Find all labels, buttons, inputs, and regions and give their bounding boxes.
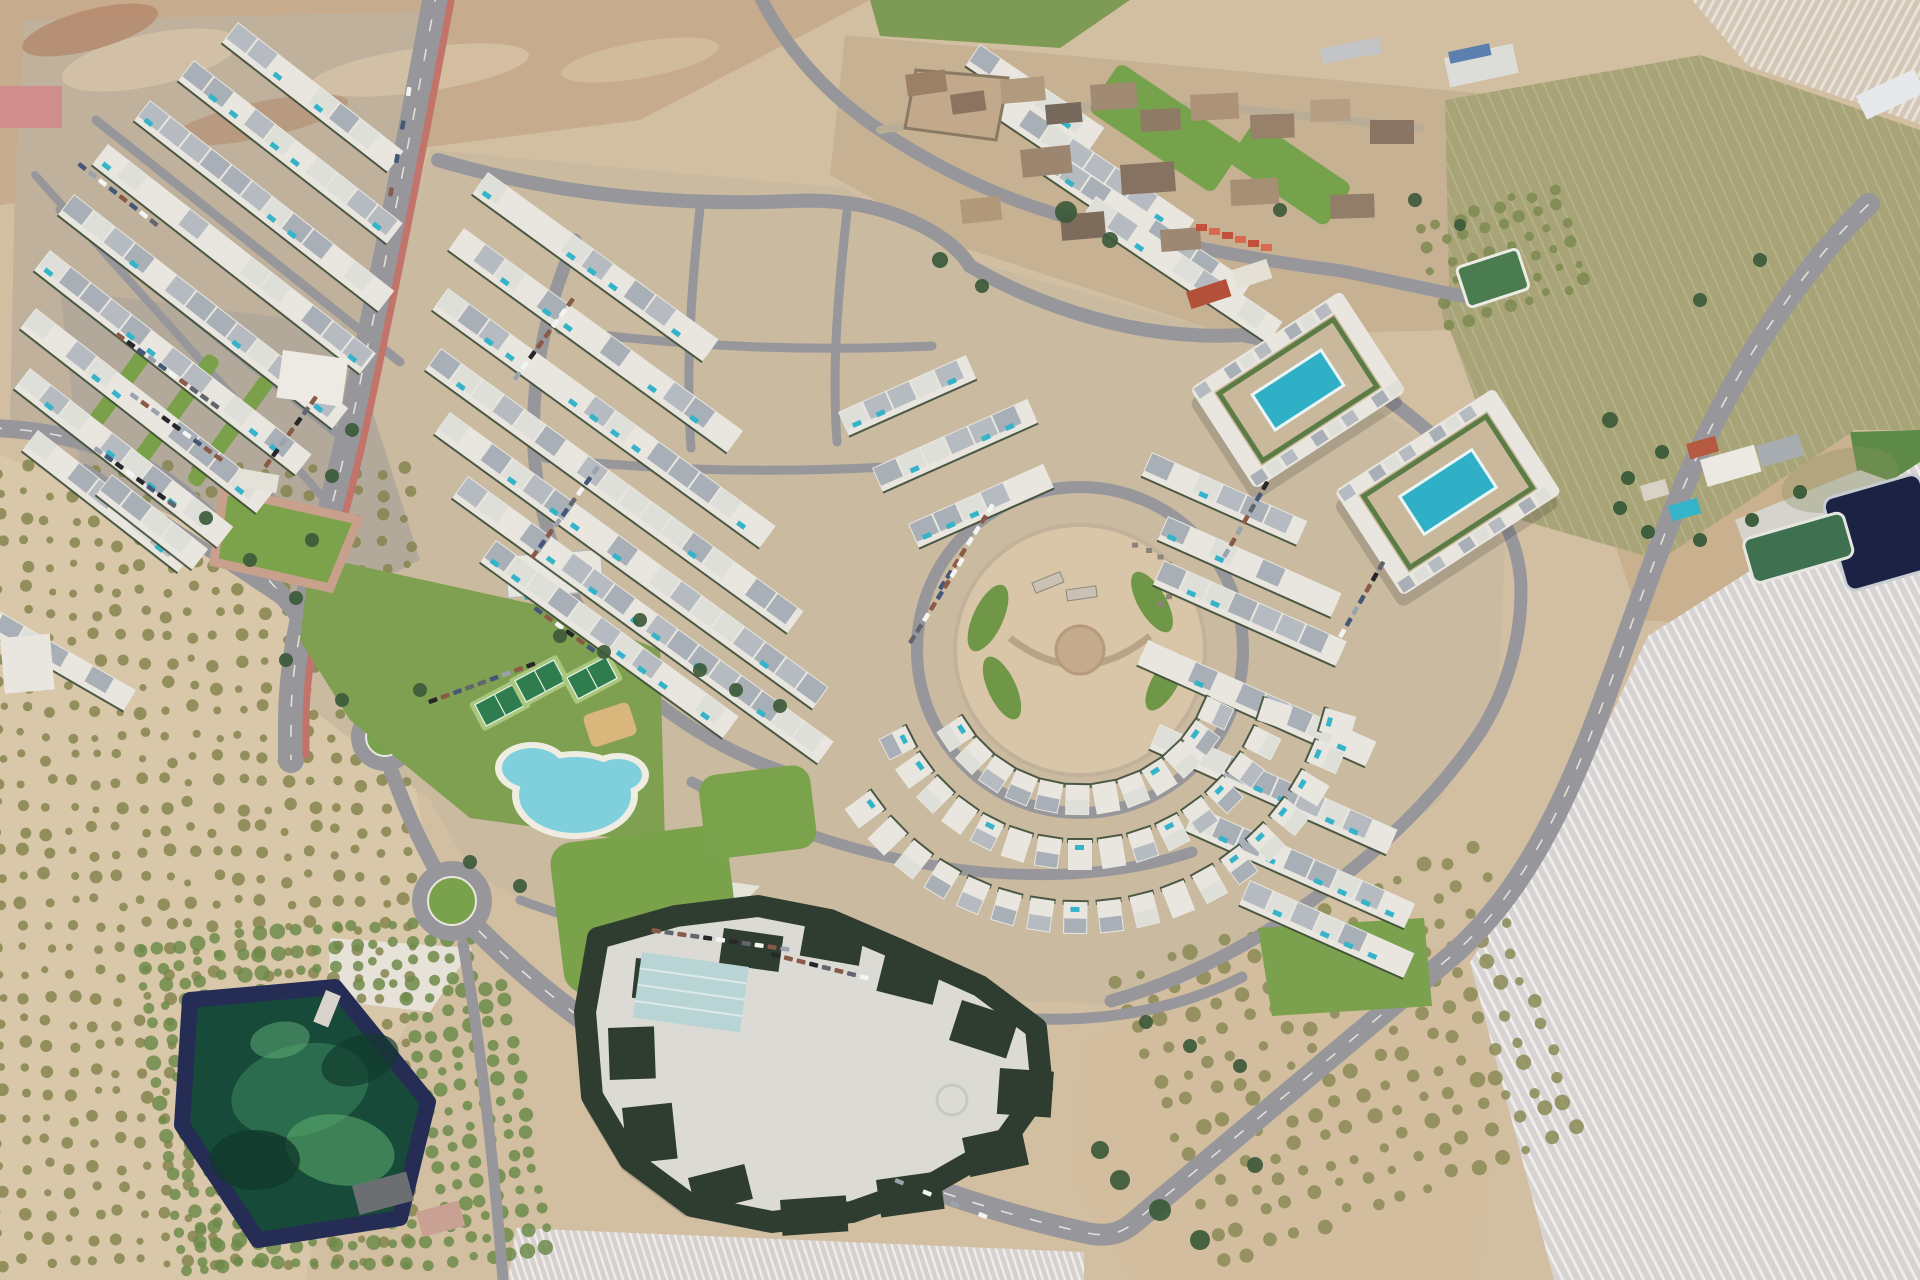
tree-dot — [384, 1257, 393, 1266]
tree-dot — [357, 994, 367, 1004]
tree-icon — [199, 511, 213, 525]
tree-dot — [163, 589, 172, 598]
tree-dot — [400, 1257, 413, 1270]
tree-icon — [1149, 1199, 1171, 1221]
villa — [1095, 897, 1125, 934]
tree-dot — [382, 804, 392, 814]
tree-dot — [208, 630, 217, 639]
tree-dot — [380, 969, 389, 978]
tree-dot — [260, 734, 268, 742]
tree-dot — [407, 1219, 417, 1229]
tree-dot — [351, 845, 360, 854]
farm-tree — [1793, 485, 1807, 499]
tree-dot — [111, 1021, 121, 1031]
tree-dot — [71, 803, 79, 811]
red-container — [1222, 232, 1233, 239]
tree-dot — [61, 1137, 73, 1149]
tree-dot — [291, 1258, 300, 1267]
tree-dot — [91, 735, 98, 742]
tree-icon — [325, 469, 339, 483]
tree-dot — [375, 994, 385, 1004]
tree-dot — [94, 538, 103, 547]
tree-dot — [40, 756, 51, 767]
tree-dot — [167, 872, 175, 880]
tree-dot — [136, 895, 145, 904]
tree-dot — [115, 1132, 126, 1143]
tree-dot — [113, 998, 122, 1007]
tree-dot — [42, 1232, 55, 1245]
tree-dot — [13, 897, 26, 910]
tree-dot — [214, 1259, 225, 1270]
tree-dot — [405, 486, 416, 497]
tree-dot — [46, 898, 55, 907]
tree-dot — [167, 658, 178, 669]
tree-dot — [399, 461, 412, 474]
tree-dot — [19, 535, 28, 544]
tree-dot — [349, 1260, 359, 1270]
tree-dot — [16, 1188, 26, 1198]
tree-dot — [39, 829, 52, 842]
tree-dot — [283, 775, 296, 788]
plaza-statue — [1158, 554, 1164, 559]
tree-dot — [64, 1187, 76, 1199]
tree-dot — [164, 844, 177, 857]
tree-dot — [142, 606, 152, 616]
village-building — [1090, 82, 1138, 111]
tree-dot — [231, 1240, 243, 1252]
tree-dot — [67, 637, 76, 646]
tree-dot — [22, 1135, 31, 1144]
tree-dot — [18, 942, 26, 950]
tree-dot — [87, 628, 98, 639]
tree-icon — [773, 699, 787, 713]
tree-dot — [212, 749, 223, 760]
village-building — [1140, 108, 1181, 132]
tree-dot — [329, 1238, 344, 1253]
tree-dot — [116, 974, 125, 983]
farm-tree — [1641, 525, 1655, 539]
tree-dot — [46, 564, 54, 572]
tree-dot — [377, 536, 387, 546]
tree-dot — [137, 848, 147, 858]
tree-icon — [305, 533, 319, 547]
tree-dot — [258, 629, 268, 639]
farm-tree — [1745, 513, 1759, 527]
tree-dot — [217, 735, 224, 742]
tree-dot — [69, 990, 81, 1002]
tree-dot — [238, 819, 251, 832]
tree-dot — [48, 944, 56, 952]
red-container — [1235, 236, 1246, 243]
tree-dot — [163, 1260, 170, 1267]
tree-dot — [255, 819, 267, 831]
tree-dot — [46, 609, 55, 618]
tree-dot — [195, 1222, 206, 1233]
tree-dot — [259, 607, 272, 620]
tree-dot — [256, 752, 267, 763]
villa — [1064, 783, 1091, 815]
tree-dot — [39, 1133, 49, 1143]
tree-dot — [206, 660, 218, 672]
tree-icon — [1110, 1170, 1130, 1190]
tree-dot — [94, 945, 103, 954]
tree-dot — [112, 1086, 120, 1094]
tree-dot — [281, 877, 292, 888]
tree-dot — [197, 1257, 207, 1267]
tree-dot — [69, 700, 79, 710]
tree-dot — [16, 1253, 27, 1264]
tree-dot — [24, 1231, 33, 1240]
tree-dot — [400, 515, 408, 523]
tree-dot — [92, 611, 102, 621]
tree-dot — [40, 1040, 52, 1052]
tree-icon — [1693, 293, 1707, 307]
tree-dot — [89, 706, 100, 717]
tree-icon — [1602, 412, 1618, 428]
tree-dot — [142, 629, 154, 641]
tree-dot — [186, 699, 198, 711]
tree-dot — [185, 897, 197, 909]
tree-dot — [111, 869, 123, 881]
village-building — [1250, 113, 1295, 139]
tree-dot — [22, 1089, 31, 1098]
tree-dot — [45, 922, 53, 930]
tree-dot — [70, 1043, 80, 1053]
tree-dot — [238, 804, 250, 816]
tree-dot — [257, 699, 269, 711]
tree-dot — [18, 921, 28, 931]
tree-dot — [212, 1217, 222, 1227]
tree-dot — [115, 629, 126, 640]
villa — [1067, 838, 1093, 870]
tree-dot — [310, 801, 323, 814]
tree-dot — [402, 1039, 411, 1048]
tree-dot — [332, 803, 341, 812]
tree-icon — [463, 855, 477, 869]
village-building — [1310, 99, 1351, 122]
tree-dot — [181, 796, 192, 807]
tree-dot — [284, 969, 293, 978]
tree-dot — [49, 588, 56, 595]
tree-dot — [20, 1035, 33, 1048]
tree-dot — [383, 900, 391, 908]
tree-dot — [86, 821, 97, 832]
tree-dot — [89, 893, 98, 902]
tree-dot — [42, 1090, 53, 1101]
tree-dot — [66, 774, 77, 785]
farm-tree — [1655, 445, 1669, 459]
tree-dot — [162, 1088, 170, 1096]
tree-dot — [271, 1256, 285, 1270]
tree-dot — [304, 845, 315, 856]
tree-dot — [89, 852, 99, 862]
tree-icon — [1091, 1141, 1109, 1159]
tree-dot — [310, 1258, 319, 1267]
tree-icon — [597, 645, 611, 659]
tree-dot — [118, 731, 127, 740]
tree-dot — [111, 822, 120, 831]
village-building — [1160, 227, 1201, 252]
tree-dot — [18, 800, 29, 811]
tree-dot — [117, 1165, 127, 1175]
tree-dot — [309, 896, 321, 908]
tree-dot — [206, 920, 218, 932]
tree-dot — [46, 536, 53, 543]
plaza-statue — [1158, 602, 1164, 607]
tree-dot — [215, 869, 226, 880]
tree-dot — [23, 702, 33, 712]
tree-dot — [22, 1165, 32, 1175]
tree-dot — [193, 1235, 207, 1249]
tree-dot — [118, 564, 128, 574]
tree-dot — [91, 1063, 103, 1075]
tree-dot — [233, 731, 241, 739]
tree-dot — [93, 1181, 102, 1190]
tree-dot — [213, 900, 221, 908]
tree-dot — [419, 1235, 432, 1248]
tree-dot — [68, 920, 78, 930]
tree-dot — [88, 1256, 97, 1265]
tree-dot — [90, 1139, 99, 1148]
tree-dot — [167, 758, 178, 769]
tree-dot — [66, 1235, 73, 1242]
tree-dot — [43, 1114, 50, 1121]
tree-dot — [212, 587, 220, 595]
tree-dot — [183, 918, 192, 927]
tree-dot — [46, 1211, 57, 1222]
tree-dot — [235, 685, 243, 693]
tree-icon — [279, 653, 293, 667]
tree-dot — [160, 611, 172, 623]
red-container — [1196, 224, 1207, 231]
tree-dot — [251, 1258, 260, 1267]
tree-dot — [210, 1237, 223, 1250]
tree-dot — [17, 780, 25, 788]
tree-dot — [21, 1063, 29, 1071]
tree-dot — [37, 867, 50, 880]
tree-dot — [188, 655, 195, 662]
village-building — [1020, 145, 1073, 178]
tree-dot — [330, 1259, 340, 1269]
tree-dot — [284, 854, 292, 862]
tree-dot — [139, 684, 146, 691]
tree-icon — [1233, 1059, 1247, 1073]
tree-icon — [1102, 232, 1118, 248]
tree-dot — [161, 706, 169, 714]
tree-dot — [117, 802, 129, 814]
tree-dot — [160, 826, 171, 837]
tree-dot — [231, 583, 243, 595]
tree-dot — [210, 683, 223, 696]
tree-dot — [406, 873, 417, 884]
tree-dot — [133, 559, 145, 571]
tree-dot — [22, 1115, 30, 1123]
tree-dot — [261, 682, 272, 693]
tree-dot — [48, 1259, 57, 1268]
tree-dot — [232, 873, 245, 886]
tree-dot — [377, 849, 386, 858]
tree-dot — [213, 846, 222, 855]
tree-dot — [118, 655, 129, 666]
tree-dot — [70, 1117, 79, 1126]
tree-dot — [63, 1164, 74, 1175]
tree-dot — [137, 1068, 147, 1078]
tree-dot — [159, 772, 170, 783]
tree-dot — [69, 1068, 79, 1078]
complex-wing-roof — [622, 1103, 678, 1164]
tree-dot — [186, 822, 195, 831]
tree-dot — [193, 730, 201, 738]
lagoon-pool — [594, 759, 642, 791]
tree-dot — [311, 820, 323, 832]
tree-dot — [363, 1258, 376, 1271]
tree-dot — [264, 807, 272, 815]
tree-dot — [134, 1014, 146, 1026]
tree-dot — [355, 780, 367, 792]
tree-dot — [137, 1113, 146, 1122]
tree-dot — [1, 703, 8, 710]
tree-dot — [140, 805, 149, 814]
tree-dot — [403, 561, 411, 569]
tree-dot — [89, 1235, 100, 1246]
tree-dot — [69, 590, 77, 598]
tree-dot — [90, 871, 103, 884]
tree-dot — [20, 1013, 28, 1021]
village-building — [1120, 161, 1176, 195]
red-container — [1261, 244, 1272, 251]
tree-dot — [46, 493, 54, 501]
tree-icon — [975, 279, 989, 293]
tree-dot — [93, 750, 101, 758]
tree-dot — [288, 901, 297, 910]
tree-dot — [381, 827, 391, 837]
tree-dot — [366, 1235, 381, 1250]
tree-dot — [96, 923, 105, 932]
tree-dot — [115, 1037, 124, 1046]
commercial-building-left — [0, 634, 55, 694]
tree-dot — [41, 1066, 53, 1078]
tree-icon — [1055, 201, 1077, 223]
tree-dot — [161, 1232, 170, 1241]
tree-dot — [189, 752, 197, 760]
tree-dot — [45, 1158, 54, 1167]
tree-dot — [256, 775, 267, 786]
tree-dot — [380, 875, 390, 885]
village-building — [1230, 177, 1279, 205]
tree-dot — [403, 1236, 416, 1249]
tree-dot — [69, 846, 77, 854]
aerial-screenshot — [0, 0, 1920, 1280]
tree-dot — [357, 828, 367, 838]
tree-dot — [112, 749, 121, 758]
tree-icon — [289, 591, 303, 605]
stadium-building-pink — [0, 86, 62, 128]
tree-icon — [1408, 193, 1422, 207]
lawn-park-2 — [697, 763, 818, 860]
tree-dot — [115, 942, 125, 952]
tree-dot — [44, 707, 55, 718]
tree-dot — [160, 732, 169, 741]
tree-icon — [1454, 219, 1466, 231]
tree-dot — [90, 993, 102, 1005]
tree-dot — [20, 871, 28, 879]
tree-dot — [20, 487, 27, 494]
tree-dot — [187, 633, 198, 644]
tree-dot — [207, 829, 216, 838]
tree-dot — [87, 1021, 98, 1032]
tree-dot — [158, 1207, 170, 1219]
aerial-map — [0, 0, 1920, 1280]
tree-dot — [114, 1253, 125, 1264]
tree-dot — [261, 657, 269, 665]
tree-dot — [91, 780, 101, 790]
tree-dot — [406, 541, 417, 552]
tree-dot — [17, 749, 25, 757]
tree-dot — [70, 537, 81, 548]
tree-dot — [44, 848, 55, 859]
tree-dot — [45, 991, 57, 1003]
tree-dot — [40, 1015, 51, 1026]
tree-dot — [134, 584, 143, 593]
tree-dot — [143, 1162, 151, 1170]
complex-wing-roof — [997, 1068, 1054, 1118]
tree-dot — [162, 676, 174, 688]
tree-dot — [21, 972, 29, 980]
tree-dot — [70, 1255, 80, 1265]
tree-dot — [331, 851, 339, 859]
tree-dot — [134, 707, 147, 720]
farm-tree — [1621, 471, 1635, 485]
tree-dot — [70, 1207, 80, 1217]
tree-dot — [20, 828, 31, 839]
tree-dot — [139, 755, 146, 762]
tree-dot — [206, 486, 218, 498]
tree-icon — [335, 693, 349, 707]
tree-dot — [284, 798, 296, 810]
tree-dot — [333, 776, 342, 785]
tree-dot — [333, 870, 345, 882]
tree-dot — [331, 753, 342, 764]
tree-dot — [112, 851, 121, 860]
tree-dot — [189, 581, 199, 591]
tree-dot — [136, 1238, 143, 1245]
tree-icon — [243, 553, 257, 567]
tree-dot — [308, 464, 317, 473]
tree-dot — [377, 508, 389, 520]
tree-icon — [1753, 253, 1767, 267]
tree-dot — [66, 944, 73, 951]
tree-dot — [141, 871, 151, 881]
village-building — [1045, 102, 1083, 125]
tree-dot — [335, 709, 345, 719]
tree-dot — [213, 773, 225, 785]
tree-dot — [0, 994, 7, 1002]
tree-dot — [185, 779, 192, 786]
villa — [1062, 900, 1089, 934]
village-building — [960, 196, 1002, 224]
tree-dot — [306, 776, 315, 785]
tree-dot — [256, 847, 268, 859]
tree-icon — [513, 879, 527, 893]
tree-icon — [345, 423, 359, 437]
tree-dot — [109, 604, 122, 617]
tree-dot — [24, 605, 33, 614]
tree-dot — [190, 845, 202, 857]
tree-dot — [378, 490, 390, 502]
tree-dot — [134, 1137, 146, 1149]
tree-dot — [16, 728, 24, 736]
tree-dot — [86, 1110, 98, 1122]
